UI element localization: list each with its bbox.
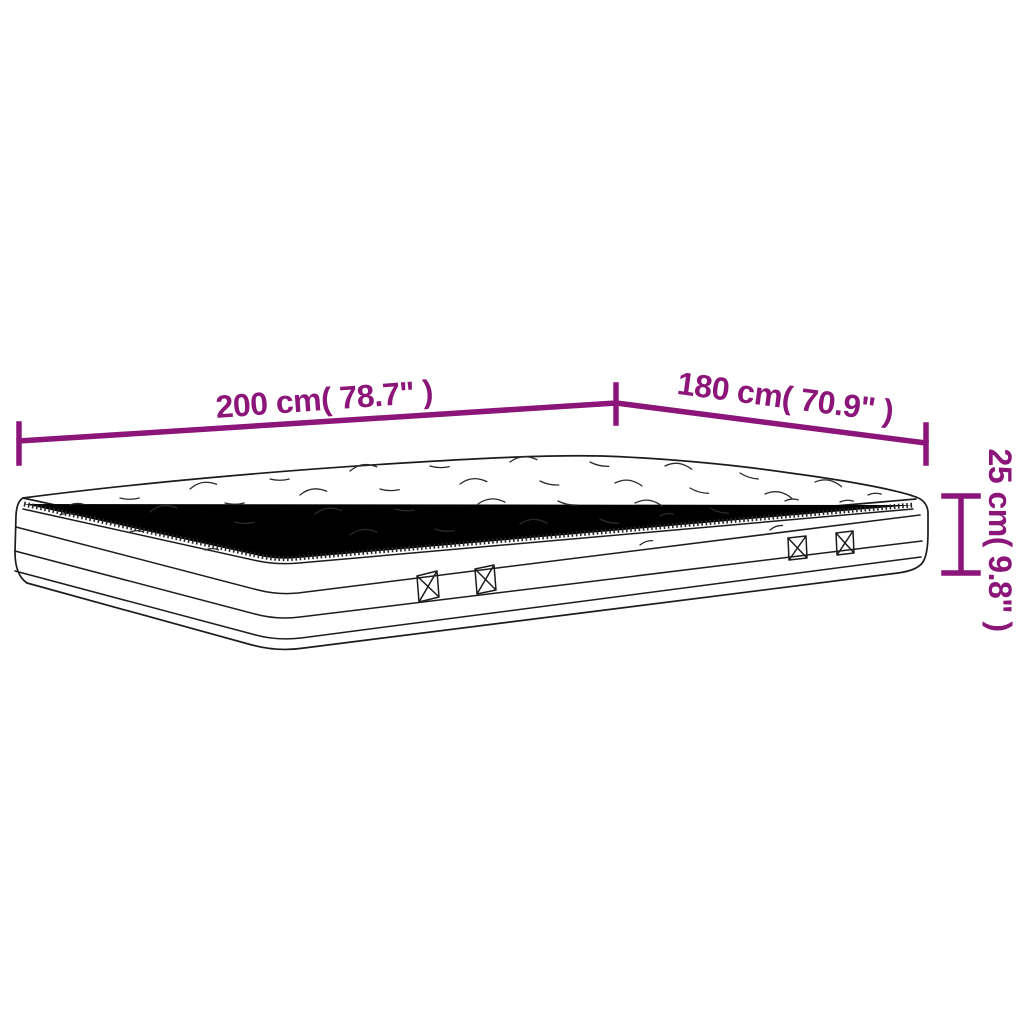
height-dimension-label: 25 cm( 9.8" ) [982,449,1018,632]
mattress-piping-texture [24,504,913,559]
height-dimension-line [944,496,978,573]
length-dimension: 200 cm( 78.7" ) [19,373,616,463]
height-dimension: 25 cm( 9.8" ) [944,449,1018,632]
mattress-left-edge [15,498,27,583]
mattress-illustration [15,455,928,649]
mattress-back-edge [23,456,916,498]
product-dimension-diagram: 200 cm( 78.7" ) 180 cm( 70.9" ) 25 cm( 9… [0,0,1024,1024]
diagram-svg: 200 cm( 78.7" ) 180 cm( 70.9" ) 25 cm( 9… [0,0,1024,1024]
mattress-handle [836,531,854,555]
width-dimension-label: 180 cm( 70.9" ) [675,365,895,429]
width-dimension: 180 cm( 70.9" ) [616,365,926,463]
